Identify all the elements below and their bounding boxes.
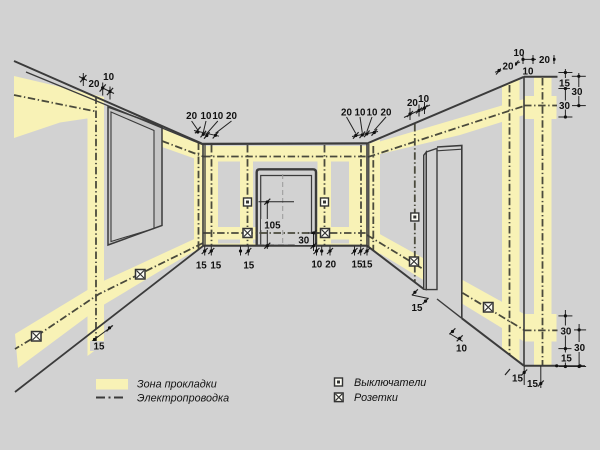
svg-text:15: 15: [559, 79, 570, 90]
svg-text:20: 20: [381, 108, 392, 119]
svg-text:15: 15: [512, 374, 523, 385]
svg-text:15: 15: [561, 354, 572, 365]
svg-text:Розетки: Розетки: [354, 392, 398, 404]
svg-text:15: 15: [362, 260, 373, 271]
svg-text:20: 20: [226, 111, 237, 122]
svg-text:105: 105: [264, 221, 281, 232]
svg-text:20: 20: [89, 79, 100, 90]
svg-text:10: 10: [523, 67, 534, 78]
svg-text:Электропроводка: Электропроводка: [137, 393, 229, 405]
svg-text:Выключатели: Выключатели: [354, 377, 426, 389]
svg-text:20: 20: [539, 55, 550, 66]
svg-text:30: 30: [298, 236, 309, 247]
svg-text:10: 10: [367, 108, 378, 119]
svg-text:15: 15: [412, 303, 423, 314]
svg-text:15: 15: [210, 261, 221, 272]
svg-text:20: 20: [325, 260, 336, 271]
svg-text:20: 20: [503, 62, 514, 73]
svg-text:Зона прокладки: Зона прокладки: [137, 379, 217, 391]
svg-text:15: 15: [196, 261, 207, 272]
svg-text:20: 20: [186, 111, 197, 122]
svg-text:30: 30: [560, 327, 571, 338]
svg-text:15: 15: [243, 261, 254, 272]
svg-text:10: 10: [103, 72, 114, 83]
svg-text:30: 30: [574, 343, 585, 354]
svg-text:10: 10: [514, 48, 525, 59]
svg-text:10: 10: [201, 111, 212, 122]
svg-text:10: 10: [418, 94, 429, 105]
svg-text:15: 15: [527, 379, 538, 390]
svg-text:10: 10: [355, 108, 366, 119]
svg-text:15: 15: [94, 342, 105, 353]
svg-text:10: 10: [311, 260, 322, 271]
svg-text:20: 20: [407, 98, 418, 109]
svg-text:20: 20: [341, 108, 352, 119]
svg-text:30: 30: [559, 101, 570, 112]
svg-text:10: 10: [212, 111, 223, 122]
svg-text:30: 30: [572, 87, 583, 98]
svg-text:10: 10: [456, 344, 467, 355]
